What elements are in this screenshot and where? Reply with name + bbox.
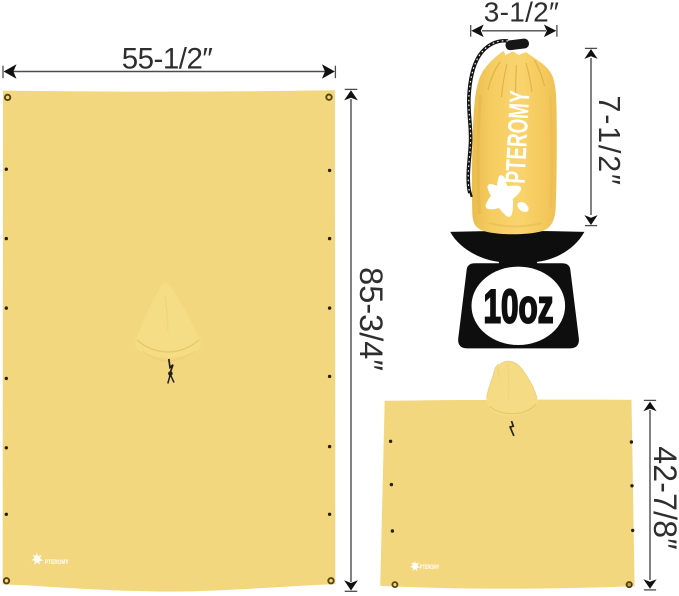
svg-text:85-3/4″: 85-3/4″: [353, 267, 389, 371]
svg-text:7-1/2″: 7-1/2″: [592, 95, 626, 186]
svg-text:PTEROMY: PTEROMY: [420, 565, 440, 571]
svg-text:PTEROMY: PTEROMY: [500, 90, 536, 185]
svg-text:PTEROMY: PTEROMY: [45, 559, 69, 566]
svg-text:55-1/2″: 55-1/2″: [122, 43, 213, 76]
svg-text:42-7/8″: 42-7/8″: [647, 446, 679, 549]
svg-text:10oz: 10oz: [484, 280, 554, 333]
svg-text:3-1/2″: 3-1/2″: [484, 0, 560, 27]
